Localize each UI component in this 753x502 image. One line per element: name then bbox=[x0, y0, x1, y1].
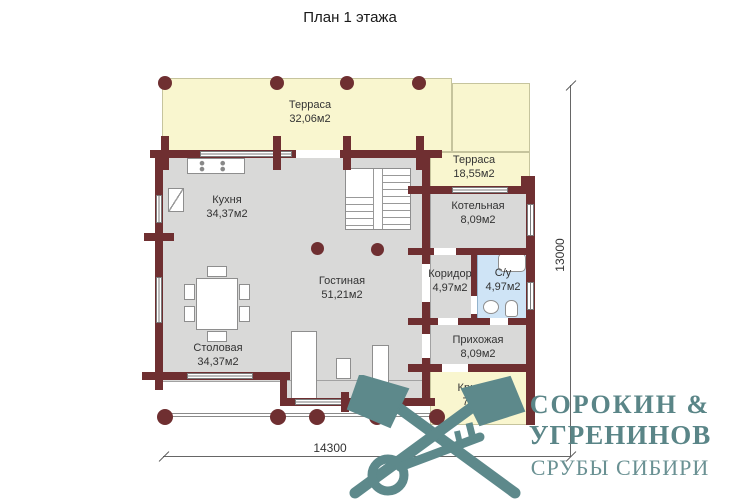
room-area: 8,09м2 bbox=[428, 347, 528, 361]
room-name: Коридор bbox=[421, 267, 479, 281]
window bbox=[187, 373, 253, 379]
logo-text-line2: УГРЕНИНОВ bbox=[492, 420, 748, 451]
log-cross bbox=[408, 364, 422, 372]
logo-text-line3: СРУБЫ СИБИРИ bbox=[492, 455, 748, 481]
interior-column bbox=[371, 243, 384, 256]
stair-divider bbox=[373, 169, 383, 229]
floor-plan-page: План 1 этажа bbox=[0, 0, 753, 502]
log-cross bbox=[408, 318, 422, 325]
room-area: 34,37м2 bbox=[167, 207, 287, 221]
terrace-post bbox=[270, 76, 284, 90]
label-living: Гостиная 51,21м2 bbox=[282, 274, 402, 303]
label-kitchen: Кухня 34,37м2 bbox=[167, 193, 287, 222]
label-terrace-top: Терраса 32,06м2 bbox=[250, 98, 370, 127]
chair bbox=[239, 284, 250, 300]
room-name: С/у bbox=[473, 266, 533, 280]
door-opening bbox=[471, 296, 477, 314]
terrace-post bbox=[158, 76, 172, 90]
sofa-large bbox=[291, 331, 317, 401]
room-name: Столовая bbox=[158, 341, 278, 355]
chair bbox=[184, 306, 195, 322]
sink bbox=[483, 300, 499, 314]
porch-door-opening bbox=[442, 364, 468, 372]
terrace-post bbox=[340, 76, 354, 90]
log-cross bbox=[161, 136, 169, 170]
interior-column bbox=[311, 242, 324, 255]
window bbox=[156, 195, 162, 223]
room-area: 8,09м2 bbox=[428, 213, 528, 227]
page-title: План 1 этажа bbox=[160, 9, 540, 26]
logo-text-line1: СОРОКИН & bbox=[492, 390, 748, 420]
chair bbox=[184, 284, 195, 300]
room-name: Гостиная bbox=[282, 274, 402, 288]
terrace-right-upper-area bbox=[452, 83, 530, 152]
log-cross bbox=[343, 136, 351, 170]
label-boiler: Котельная 8,09м2 bbox=[428, 199, 528, 228]
label-terrace-right: Терраса 18,55м2 bbox=[434, 153, 514, 182]
log-cross bbox=[408, 186, 422, 194]
veranda-post bbox=[157, 409, 173, 425]
room-name: Терраса bbox=[250, 98, 370, 112]
room-name: Котельная bbox=[428, 199, 528, 213]
kitchen-counter-stove bbox=[187, 158, 245, 174]
window bbox=[452, 187, 508, 193]
dining-table bbox=[196, 278, 238, 330]
chair bbox=[207, 266, 227, 277]
veranda-post bbox=[309, 409, 325, 425]
log-cross bbox=[144, 233, 174, 241]
door-opening bbox=[438, 318, 458, 325]
label-dining: Столовая 34,37м2 bbox=[158, 341, 278, 370]
room-area: 4,97м2 bbox=[473, 280, 533, 294]
chair bbox=[239, 306, 250, 322]
label-hallway: Прихожая 8,09м2 bbox=[428, 333, 528, 362]
dimension-height-label: 13000 bbox=[530, 225, 590, 285]
label-corridor: Коридор 4,97м2 bbox=[421, 267, 479, 296]
stair-flight-left bbox=[346, 191, 373, 229]
window bbox=[156, 277, 162, 323]
log-cross bbox=[416, 136, 424, 170]
room-area: 34,37м2 bbox=[158, 355, 278, 369]
staircase bbox=[345, 168, 411, 230]
room-area: 32,06м2 bbox=[250, 112, 370, 126]
wall-post-square bbox=[521, 176, 535, 190]
room-name: Кухня bbox=[167, 193, 287, 207]
label-bathroom: С/у 4,97м2 bbox=[473, 266, 533, 295]
room-area: 18,55м2 bbox=[434, 167, 514, 181]
wall-stub-dining-living bbox=[280, 372, 287, 406]
room-name: Терраса bbox=[434, 153, 514, 167]
log-cross bbox=[408, 248, 422, 255]
stair-flight-right bbox=[383, 169, 410, 229]
door-opening bbox=[434, 248, 456, 255]
terrace-door-opening bbox=[296, 150, 340, 158]
terrace-post bbox=[412, 76, 426, 90]
log-cross bbox=[273, 136, 281, 170]
room-area: 51,21м2 bbox=[282, 288, 402, 302]
wall-hallway-bottom bbox=[422, 364, 535, 372]
room-area: 4,97м2 bbox=[421, 281, 479, 295]
door-opening bbox=[490, 318, 508, 325]
dimension-tick bbox=[566, 80, 577, 91]
toilet bbox=[505, 300, 518, 317]
veranda-post bbox=[270, 409, 286, 425]
room-name: Прихожая bbox=[428, 333, 528, 347]
